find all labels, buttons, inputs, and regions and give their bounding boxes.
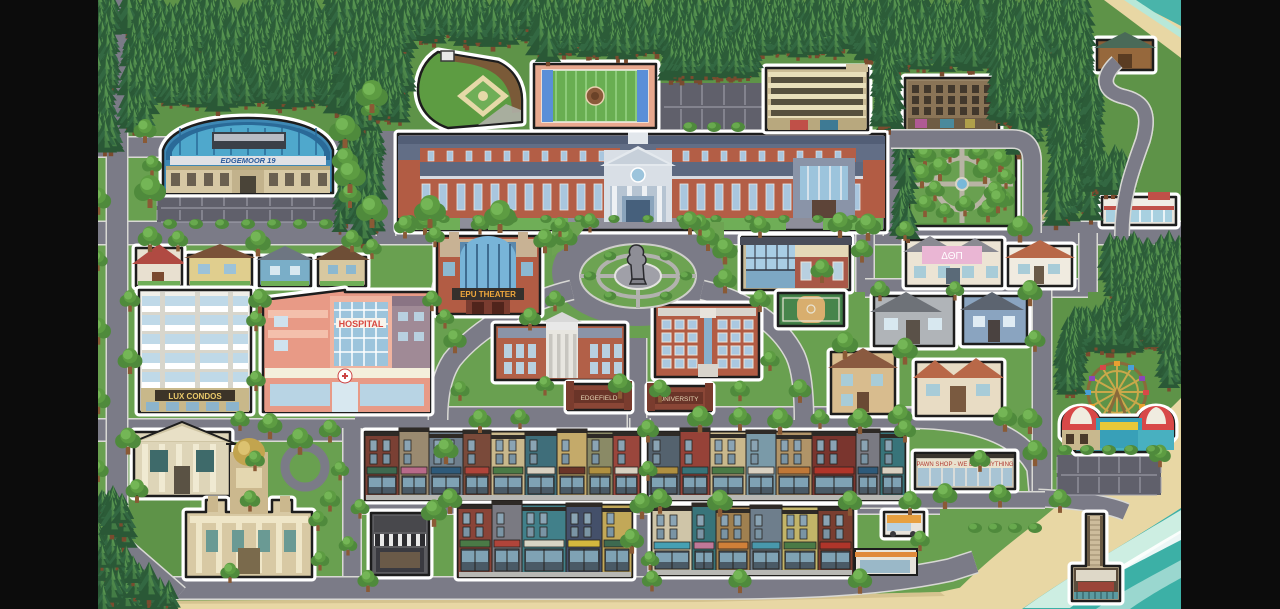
svg-text:HOSPITAL: HOSPITAL [339,319,384,329]
svg-text:LUX CONDOS: LUX CONDOS [168,392,222,401]
svg-text:EDGEMOOR 19: EDGEMOOR 19 [220,156,276,165]
svg-text:ΔΘΠ: ΔΘΠ [941,251,962,262]
svg-text:PAWN SHOP - WE BUY ANYTHING: PAWN SHOP - WE BUY ANYTHING [916,462,1013,468]
svg-text:EDGEFIELD: EDGEFIELD [581,395,618,402]
svg-text:EPU THEATER: EPU THEATER [460,290,516,299]
